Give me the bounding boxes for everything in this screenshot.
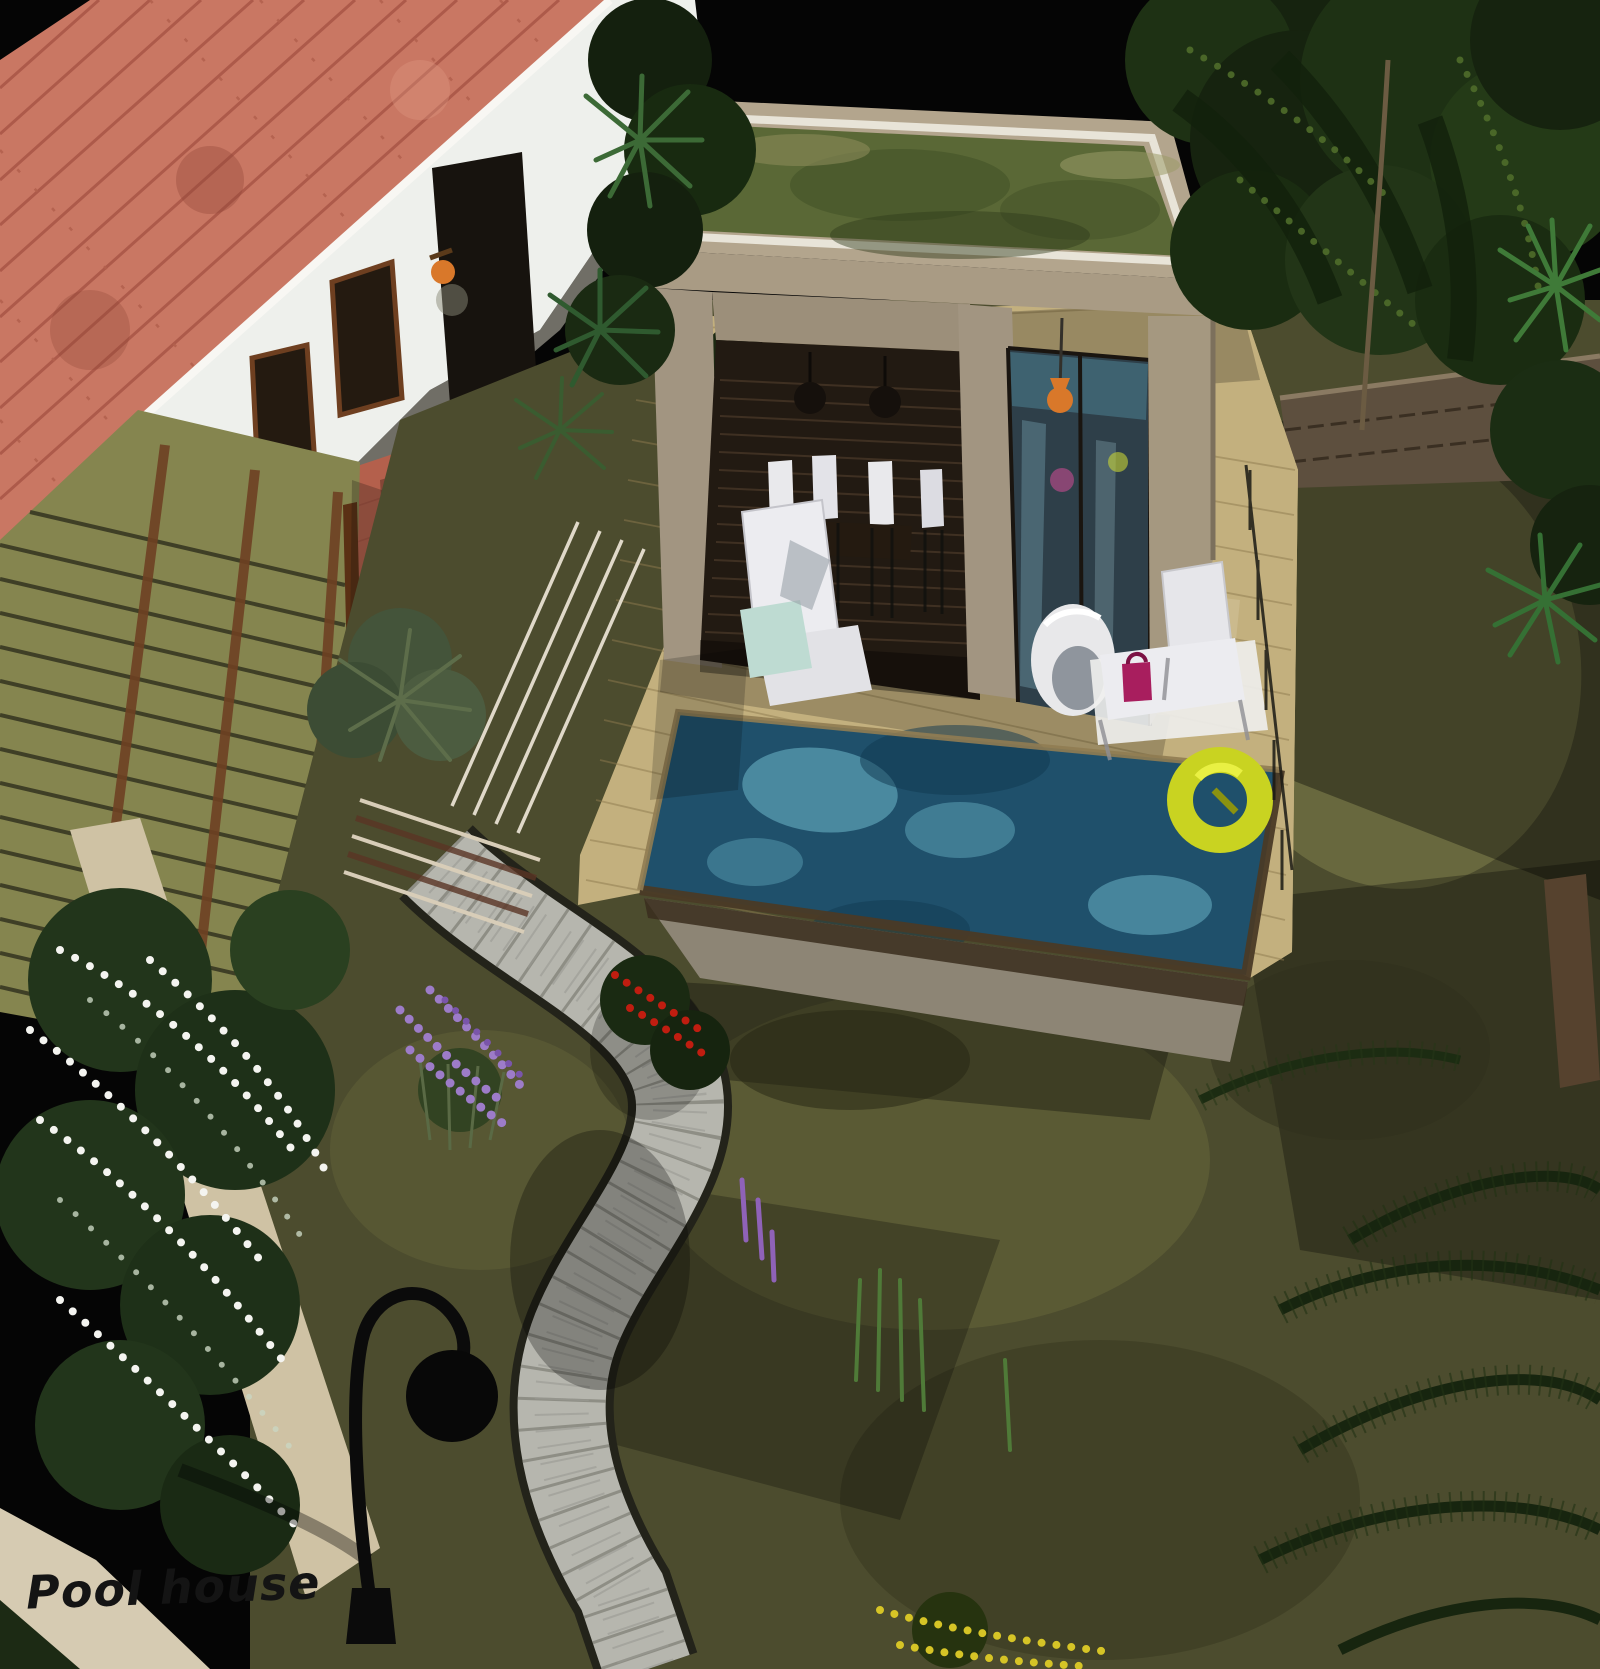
teal-towel	[740, 600, 812, 678]
shrub-mass	[230, 890, 350, 1010]
dark-grass	[730, 1010, 970, 1110]
water-shade	[860, 725, 1050, 795]
pendant-lamp	[794, 382, 826, 414]
lantern-shadow	[436, 284, 468, 316]
water-reflection	[707, 838, 803, 886]
roof-highlight	[390, 60, 450, 120]
window	[332, 262, 402, 415]
dining-chair	[920, 469, 944, 528]
dining-chair	[868, 461, 894, 526]
water-reflection	[905, 802, 1015, 858]
pendant-lamp	[869, 386, 901, 418]
wall-lantern	[431, 260, 455, 284]
roof-moss-shade	[830, 211, 1090, 259]
roof-dry-grass	[1060, 151, 1180, 179]
roof-stain	[50, 290, 130, 370]
caption-pool-house: Pool house	[25, 1554, 347, 1619]
scene-illustration	[0, 0, 1600, 1669]
rendering-canvas: Pool house	[0, 0, 1600, 1669]
shadow-on-path	[510, 1130, 690, 1390]
grey-green-bush	[307, 662, 403, 758]
magenta-bag	[1122, 662, 1152, 702]
lamp-base	[346, 1588, 396, 1644]
glass-pink-reflection	[1050, 468, 1074, 492]
roof-stain	[176, 146, 244, 214]
glass-yellow-reflection	[1108, 452, 1128, 472]
orange-pendant-lamp	[1047, 387, 1073, 413]
water-reflection	[1088, 875, 1212, 935]
lamp-head	[406, 1350, 498, 1442]
red-flower-foliage	[650, 1010, 730, 1090]
chair-shadow	[650, 648, 748, 800]
